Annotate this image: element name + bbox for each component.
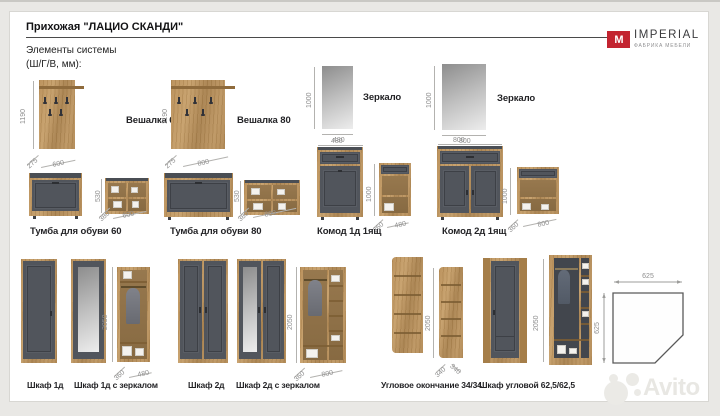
handle bbox=[466, 156, 474, 158]
dim-line bbox=[112, 267, 113, 362]
dim-line bbox=[240, 181, 241, 214]
dim-line bbox=[433, 268, 434, 358]
imperial-brand: IMPERIAL bbox=[634, 29, 700, 41]
box bbox=[253, 203, 263, 210]
box bbox=[278, 203, 286, 210]
dim-line bbox=[434, 66, 435, 130]
komod2-open-figure bbox=[517, 167, 559, 214]
dim-line bbox=[318, 145, 363, 146]
handle bbox=[336, 156, 344, 158]
box bbox=[569, 348, 577, 354]
box bbox=[113, 201, 122, 208]
handle bbox=[466, 190, 468, 195]
box bbox=[111, 186, 119, 193]
dim-line bbox=[314, 67, 315, 129]
box bbox=[582, 311, 589, 317]
shkaf1z-label: Шкаф 1д с зеркалом bbox=[74, 380, 158, 390]
tumba80-label: Тумба для обуви 80 bbox=[170, 226, 261, 237]
box bbox=[306, 349, 318, 358]
komod1-front-figure bbox=[317, 147, 363, 217]
imperial-logo-mark-icon: M bbox=[607, 31, 630, 48]
hanger-shelf bbox=[39, 86, 84, 89]
dim-line bbox=[510, 168, 511, 215]
zerkalo480-height-dim: 1000 bbox=[306, 92, 313, 108]
box bbox=[123, 271, 132, 279]
box bbox=[132, 201, 139, 208]
page-title: Прихожая "ЛАЦИО СКАНДИ" bbox=[26, 21, 183, 33]
komod2-height-dim: 1000 bbox=[502, 188, 509, 204]
drawer bbox=[381, 165, 409, 174]
plan-width-dim: 625 bbox=[642, 273, 654, 280]
subtitle-line2: (Ш/Г/В, мм): bbox=[26, 59, 82, 70]
shkaf2z-front-figure bbox=[237, 259, 286, 363]
shkaf-uglovoy-open-figure bbox=[549, 255, 592, 365]
dim-line bbox=[438, 144, 502, 145]
handle bbox=[199, 307, 201, 313]
tumba60-front-figure bbox=[29, 173, 82, 216]
shkaf2-label: Шкаф 2д bbox=[188, 380, 224, 390]
mirror bbox=[243, 267, 257, 352]
angled-side bbox=[483, 258, 490, 363]
shkaf2z-label: Шкаф 2д с зеркалом bbox=[236, 380, 320, 390]
coat bbox=[308, 280, 322, 316]
box bbox=[384, 203, 394, 211]
handle bbox=[205, 307, 207, 313]
hanger-shelf bbox=[171, 86, 235, 89]
komod2-frontwidth-dim: 800 bbox=[453, 137, 465, 144]
box bbox=[582, 263, 589, 269]
handle bbox=[264, 307, 266, 313]
box bbox=[277, 189, 285, 195]
shoe-flap-door bbox=[167, 180, 230, 212]
shkaf1-label: Шкаф 1д bbox=[27, 380, 63, 390]
shkaf1-open-figure bbox=[117, 267, 150, 362]
box bbox=[557, 345, 566, 354]
box bbox=[122, 346, 132, 356]
handle bbox=[493, 310, 495, 315]
dim-line bbox=[322, 134, 353, 135]
tumba60-label: Тумба для обуви 60 bbox=[30, 226, 121, 237]
uglovoe-label: Угловое окончание 34/34 bbox=[381, 380, 482, 390]
handle bbox=[52, 182, 59, 184]
box bbox=[522, 203, 531, 210]
box bbox=[582, 279, 589, 285]
angled-side bbox=[520, 258, 527, 363]
dim-line bbox=[442, 135, 486, 136]
header-rule bbox=[26, 37, 607, 38]
hanger-panel bbox=[171, 80, 225, 149]
door bbox=[491, 261, 519, 358]
uglovoe-figure-2 bbox=[439, 267, 463, 358]
shkaf2-front-figure bbox=[178, 259, 228, 363]
box bbox=[251, 188, 260, 195]
box bbox=[331, 275, 340, 282]
handle bbox=[50, 311, 52, 316]
komod1-label: Комод 1д 1ящ bbox=[317, 226, 381, 237]
shkaf-uglovoy-height-dim: 2050 bbox=[533, 315, 540, 331]
komod1-frontwidth-dim: 480 bbox=[331, 138, 343, 145]
dim-line bbox=[33, 81, 34, 149]
shkaf1-height-dim: 2050 bbox=[102, 314, 109, 330]
veshalka80-height-dim: 1190 bbox=[162, 109, 169, 124]
uglovoe-height-dim: 2050 bbox=[425, 315, 432, 331]
photo-top-edge bbox=[0, 0, 720, 2]
handle bbox=[338, 170, 342, 172]
dim-line bbox=[296, 267, 297, 363]
uglovoe-figure-1 bbox=[392, 257, 423, 353]
box bbox=[541, 204, 549, 210]
veshalka80-figure bbox=[171, 80, 225, 149]
door-right bbox=[263, 261, 284, 359]
door-left bbox=[440, 166, 469, 213]
hanger-panel bbox=[39, 80, 75, 149]
coat bbox=[126, 288, 140, 324]
komod2-label: Комод 2д 1ящ bbox=[442, 226, 506, 237]
dim-line bbox=[543, 259, 544, 362]
subtitle-line1: Элементы системы bbox=[26, 45, 116, 56]
shkaf-uglovoy-front-figure bbox=[483, 258, 527, 363]
imperial-tagline: ФАБРИКА МЕБЕЛИ bbox=[634, 43, 691, 49]
shkaf2-height-dim: 2050 bbox=[287, 314, 294, 330]
plan-depth-dim: 625 bbox=[594, 322, 601, 334]
shkaf-uglovoy-label: Шкаф угловой 62,5/62,5 bbox=[479, 380, 575, 390]
corner-plan-drawing: 625 625 bbox=[590, 266, 696, 370]
zerkalo480-mirror bbox=[322, 66, 353, 129]
door bbox=[320, 166, 360, 213]
shkaf1-front-figure bbox=[21, 259, 57, 363]
coat bbox=[558, 270, 570, 304]
cabinet-top bbox=[30, 173, 81, 178]
handle bbox=[195, 182, 202, 184]
shkaf1z-front-figure bbox=[71, 259, 106, 363]
mirror bbox=[78, 267, 99, 352]
veshalka60-height-dim: 1190 bbox=[20, 109, 27, 124]
zerkalo800-label: Зеркало bbox=[497, 93, 535, 104]
avito-watermark: Avito bbox=[643, 374, 700, 402]
door-right bbox=[204, 261, 226, 359]
drawer bbox=[320, 152, 360, 164]
veshalka60-figure bbox=[39, 80, 75, 149]
handle bbox=[258, 307, 260, 313]
komod2-front-figure bbox=[437, 146, 503, 217]
shkaf2-open-figure bbox=[300, 267, 346, 363]
handle bbox=[472, 190, 474, 195]
door bbox=[23, 261, 55, 359]
tumba60-open-figure bbox=[105, 178, 149, 214]
zerkalo480-label: Зеркало bbox=[363, 92, 401, 103]
zerkalo800-mirror bbox=[442, 64, 486, 130]
dim-line bbox=[374, 164, 375, 216]
box bbox=[135, 348, 144, 356]
drawer bbox=[519, 169, 557, 178]
door-right bbox=[471, 166, 500, 213]
komod1-open-figure bbox=[379, 163, 411, 216]
zerkalo800-height-dim: 1000 bbox=[426, 92, 433, 108]
dim-line bbox=[101, 179, 102, 213]
tumba80-front-figure bbox=[164, 173, 233, 217]
box bbox=[131, 187, 138, 193]
veshalka80-label: Вешалка 80 bbox=[237, 115, 291, 126]
komod1-height-dim: 1000 bbox=[366, 186, 373, 202]
box bbox=[331, 335, 340, 341]
shoe-flap-door bbox=[32, 180, 79, 211]
